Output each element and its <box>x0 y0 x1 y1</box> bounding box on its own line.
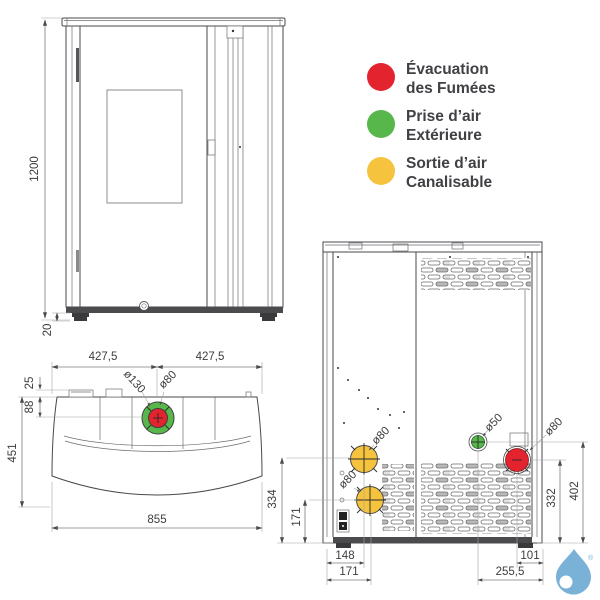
door-hinge-upper <box>76 48 79 82</box>
hopper-lid <box>69 390 93 397</box>
dim-rear-flue-x: 101 <box>520 550 539 562</box>
legend-text-line: Extérieure <box>406 127 482 144</box>
legend-dot-green <box>367 110 395 138</box>
rear-flue-outlet <box>504 447 531 474</box>
legend-label-flue-exhaust: Évacuation des Fumées <box>406 60 496 98</box>
front-view <box>41 18 285 321</box>
dim-rear-upper-duct-x: 148 <box>335 550 354 562</box>
legend-item-ductable-air-outlet: Sortie d’air Canalisable <box>367 154 496 192</box>
rear-view <box>277 242 588 585</box>
dim-top-depth: 451 <box>7 443 19 462</box>
dim-top-left-half: 427,5 <box>89 351 118 363</box>
front-base <box>66 307 283 313</box>
front-feet <box>72 313 277 321</box>
dim-rear-flue-height: 332 <box>546 488 558 507</box>
control-cover <box>106 389 122 397</box>
dimensional-drawing-page: ® Évacuation des Fumées Prise d’air Exté… <box>0 0 600 600</box>
door-latch <box>208 140 215 155</box>
legend-text-line: Évacuation <box>406 61 489 78</box>
legend-label-outside-air-intake: Prise d’air Extérieure <box>406 107 482 145</box>
legend-dot-red <box>367 63 395 91</box>
dim-rear-upper-duct-height: 334 <box>267 489 279 508</box>
side-bracket <box>227 26 243 38</box>
dim-rear-lower-duct-height: 171 <box>291 507 303 526</box>
brand-emblem <box>140 302 149 311</box>
dim-top-flue-offset: 88 <box>24 401 36 414</box>
dim-front-feet-height: 20 <box>42 324 54 337</box>
legend-text-line: Sortie d’air <box>406 155 487 172</box>
legend: Évacuation des Fumées Prise d’air Extéri… <box>367 60 496 201</box>
dim-top-lid-offset: 25 <box>24 377 36 390</box>
water-drop-icon <box>556 549 591 595</box>
dim-top-width: 855 <box>147 514 166 526</box>
rear-upper-vent-grid <box>421 258 531 290</box>
front-top-cap <box>62 18 285 26</box>
door-window <box>107 90 182 203</box>
legend-text-line: Prise d’air <box>406 108 481 125</box>
brand-watermark: ® <box>556 549 594 595</box>
dim-rear-air-intake-x: 255,5 <box>496 566 525 578</box>
rear-air-intake <box>469 433 487 451</box>
rear-top-cap <box>323 242 542 252</box>
dim-front-height: 1200 <box>29 156 41 182</box>
legend-item-outside-air-intake: Prise d’air Extérieure <box>367 107 496 145</box>
legend-text-line: Canalisable <box>406 174 492 191</box>
legend-label-ductable-air-outlet: Sortie d’air Canalisable <box>406 154 492 192</box>
legend-item-flue-exhaust: Évacuation des Fumées <box>367 60 496 98</box>
rear-base <box>333 537 532 543</box>
dim-rear-lower-duct-x: 171 <box>339 566 358 578</box>
rear-duct-outlet-lower <box>354 484 386 516</box>
dim-rear-air-intake-height: 402 <box>569 481 581 500</box>
rear-notch <box>246 392 251 397</box>
dim-top-right-half: 427,5 <box>196 351 225 363</box>
legend-dot-yellow <box>367 157 395 185</box>
legend-text-line: des Fumées <box>406 80 496 97</box>
rear-left-vent-grid <box>382 464 414 531</box>
door-hinge-lower <box>76 250 79 272</box>
registered-mark: ® <box>588 554 594 562</box>
